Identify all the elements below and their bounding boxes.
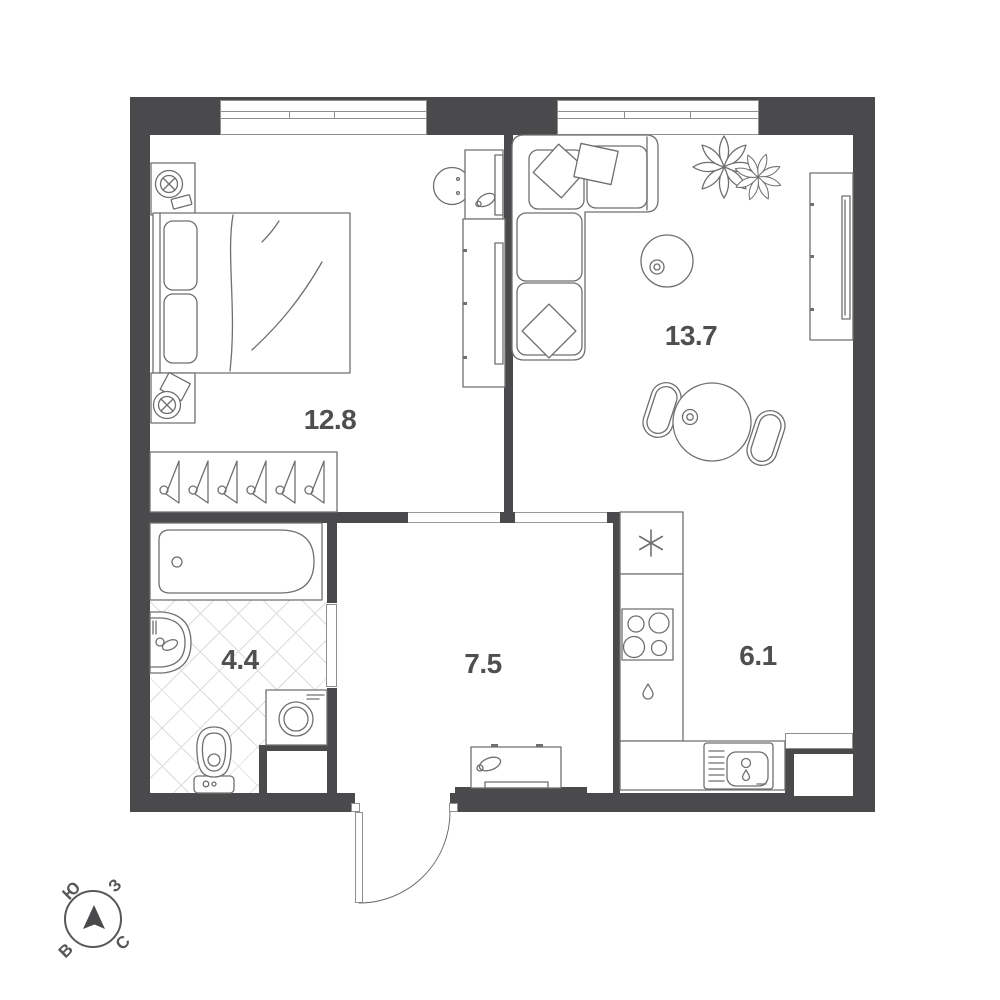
dining-table — [639, 379, 789, 470]
pouf — [641, 235, 693, 287]
tv-icon — [842, 196, 850, 319]
nightstand-top — [151, 163, 195, 215]
washing-machine-icon — [266, 690, 327, 745]
kitchen-counter-bottom — [620, 741, 785, 790]
tv-console — [810, 173, 853, 340]
plant-icon — [693, 136, 789, 208]
fridge — [620, 512, 683, 574]
hanger-closet — [150, 452, 337, 512]
pillow-icon — [574, 143, 618, 184]
area-label-bedroom: 12.8 — [285, 404, 375, 436]
corner-sofa — [512, 135, 658, 360]
toilet-icon — [194, 727, 234, 793]
nightstand-bottom — [151, 373, 195, 423]
desk — [434, 150, 504, 219]
area-label-living: 13.7 — [646, 320, 736, 352]
washbasin-icon — [150, 612, 191, 673]
entrance-door-arc — [359, 812, 450, 903]
north-arrow-icon — [83, 905, 105, 929]
furniture-layer — [0, 0, 1000, 1000]
bed — [153, 213, 350, 373]
kitchen-counter-left — [620, 574, 683, 741]
area-label-kitchen: 6.1 — [713, 640, 803, 672]
area-label-bathroom: 4.4 — [195, 644, 285, 676]
floor-plan: 12.8 13.7 4.4 7.5 6.1 Ю З С В — [0, 0, 1000, 1000]
area-label-hallway: 7.5 — [438, 648, 528, 680]
wardrobe — [463, 219, 505, 387]
bathtub — [150, 523, 322, 600]
shoe-cabinet — [471, 744, 561, 788]
